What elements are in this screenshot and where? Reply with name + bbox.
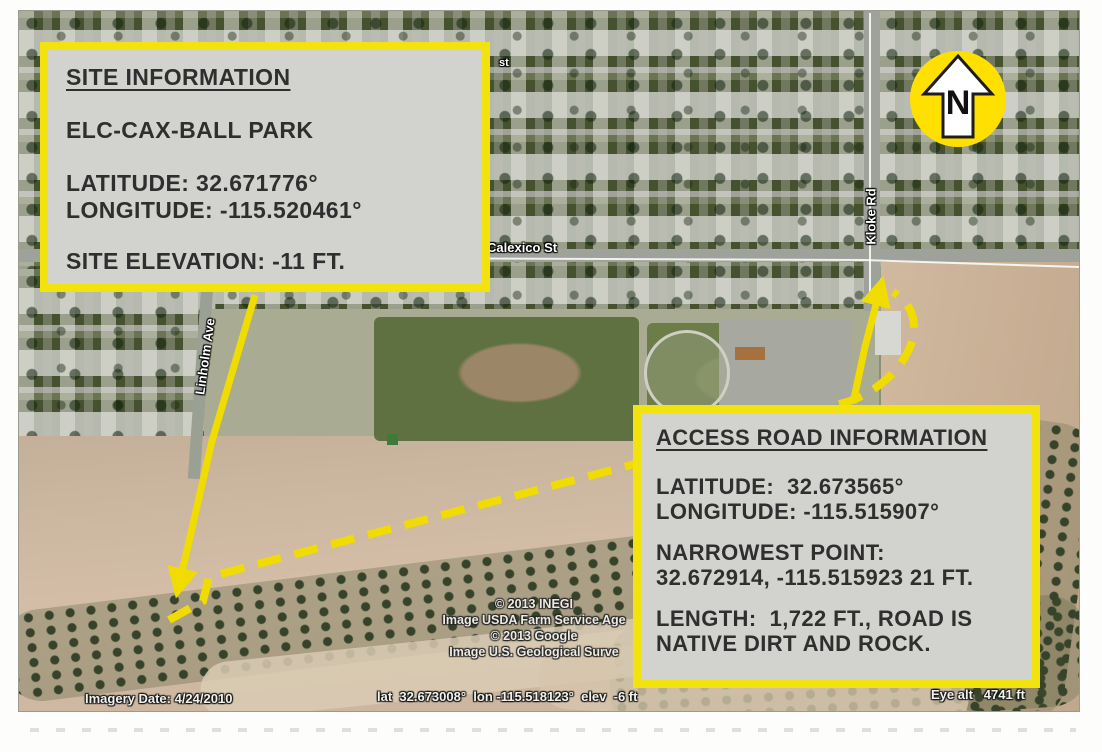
imagery-date-text: Imagery Date: 4/24/2010: [85, 691, 232, 706]
ball-field-grass: [374, 317, 639, 441]
site-latitude: LATITUDE: 32.671776°: [66, 170, 464, 197]
site-name: ELC-CAX-BALL PARK: [66, 117, 464, 144]
street-label-kloke: Kloke Rd: [864, 177, 879, 257]
kloke-road: [864, 11, 880, 311]
street-label-calexico: Calexico St: [487, 240, 557, 255]
access-road-longitude: LONGITUDE: -115.515907°: [656, 499, 1017, 524]
street-label-partial: st: [499, 57, 509, 69]
access-road-title: ACCESS ROAD INFORMATION: [656, 425, 1017, 450]
park-building: [735, 347, 765, 360]
parking-lot: [719, 319, 851, 413]
narrowest-point-label: NARROWEST POINT:: [656, 540, 1017, 565]
narrowest-point-value: 32.672914, -115.515923 21 FT.: [656, 565, 1017, 590]
access-road-latitude: LATITUDE: 32.673565°: [656, 474, 1017, 499]
scanned-site-map-page: Calexico St Kloke Rd Linholm Ave st © 20…: [0, 0, 1102, 752]
site-longitude: LONGITUDE: -115.520461°: [66, 197, 464, 224]
circular-court: [644, 330, 730, 416]
scan-ghosting-artifact: [30, 728, 1076, 732]
utility-building: [875, 311, 901, 355]
site-info-title: SITE INFORMATION: [66, 64, 464, 91]
site-information-box: SITE INFORMATION ELC-CAX-BALL PARK LATIT…: [40, 42, 490, 292]
cursor-coordinates-text: lat 32.673008° lon -115.518123° elev -6 …: [377, 689, 637, 704]
eye-altitude-text: Eye alt 4741 ft: [931, 687, 1025, 702]
site-elevation: SITE ELEVATION: -11 FT.: [66, 248, 464, 275]
north-arrow-icon: N: [902, 42, 1014, 154]
road-length-line: LENGTH: 1,722 FT., ROAD IS: [656, 606, 1017, 631]
access-road-information-box: ACCESS ROAD INFORMATION LATITUDE: 32.673…: [633, 405, 1040, 688]
compass-letter: N: [946, 84, 971, 122]
road-surface-line: NATIVE DIRT AND ROCK.: [656, 631, 1017, 656]
small-green-structure: [387, 434, 398, 445]
